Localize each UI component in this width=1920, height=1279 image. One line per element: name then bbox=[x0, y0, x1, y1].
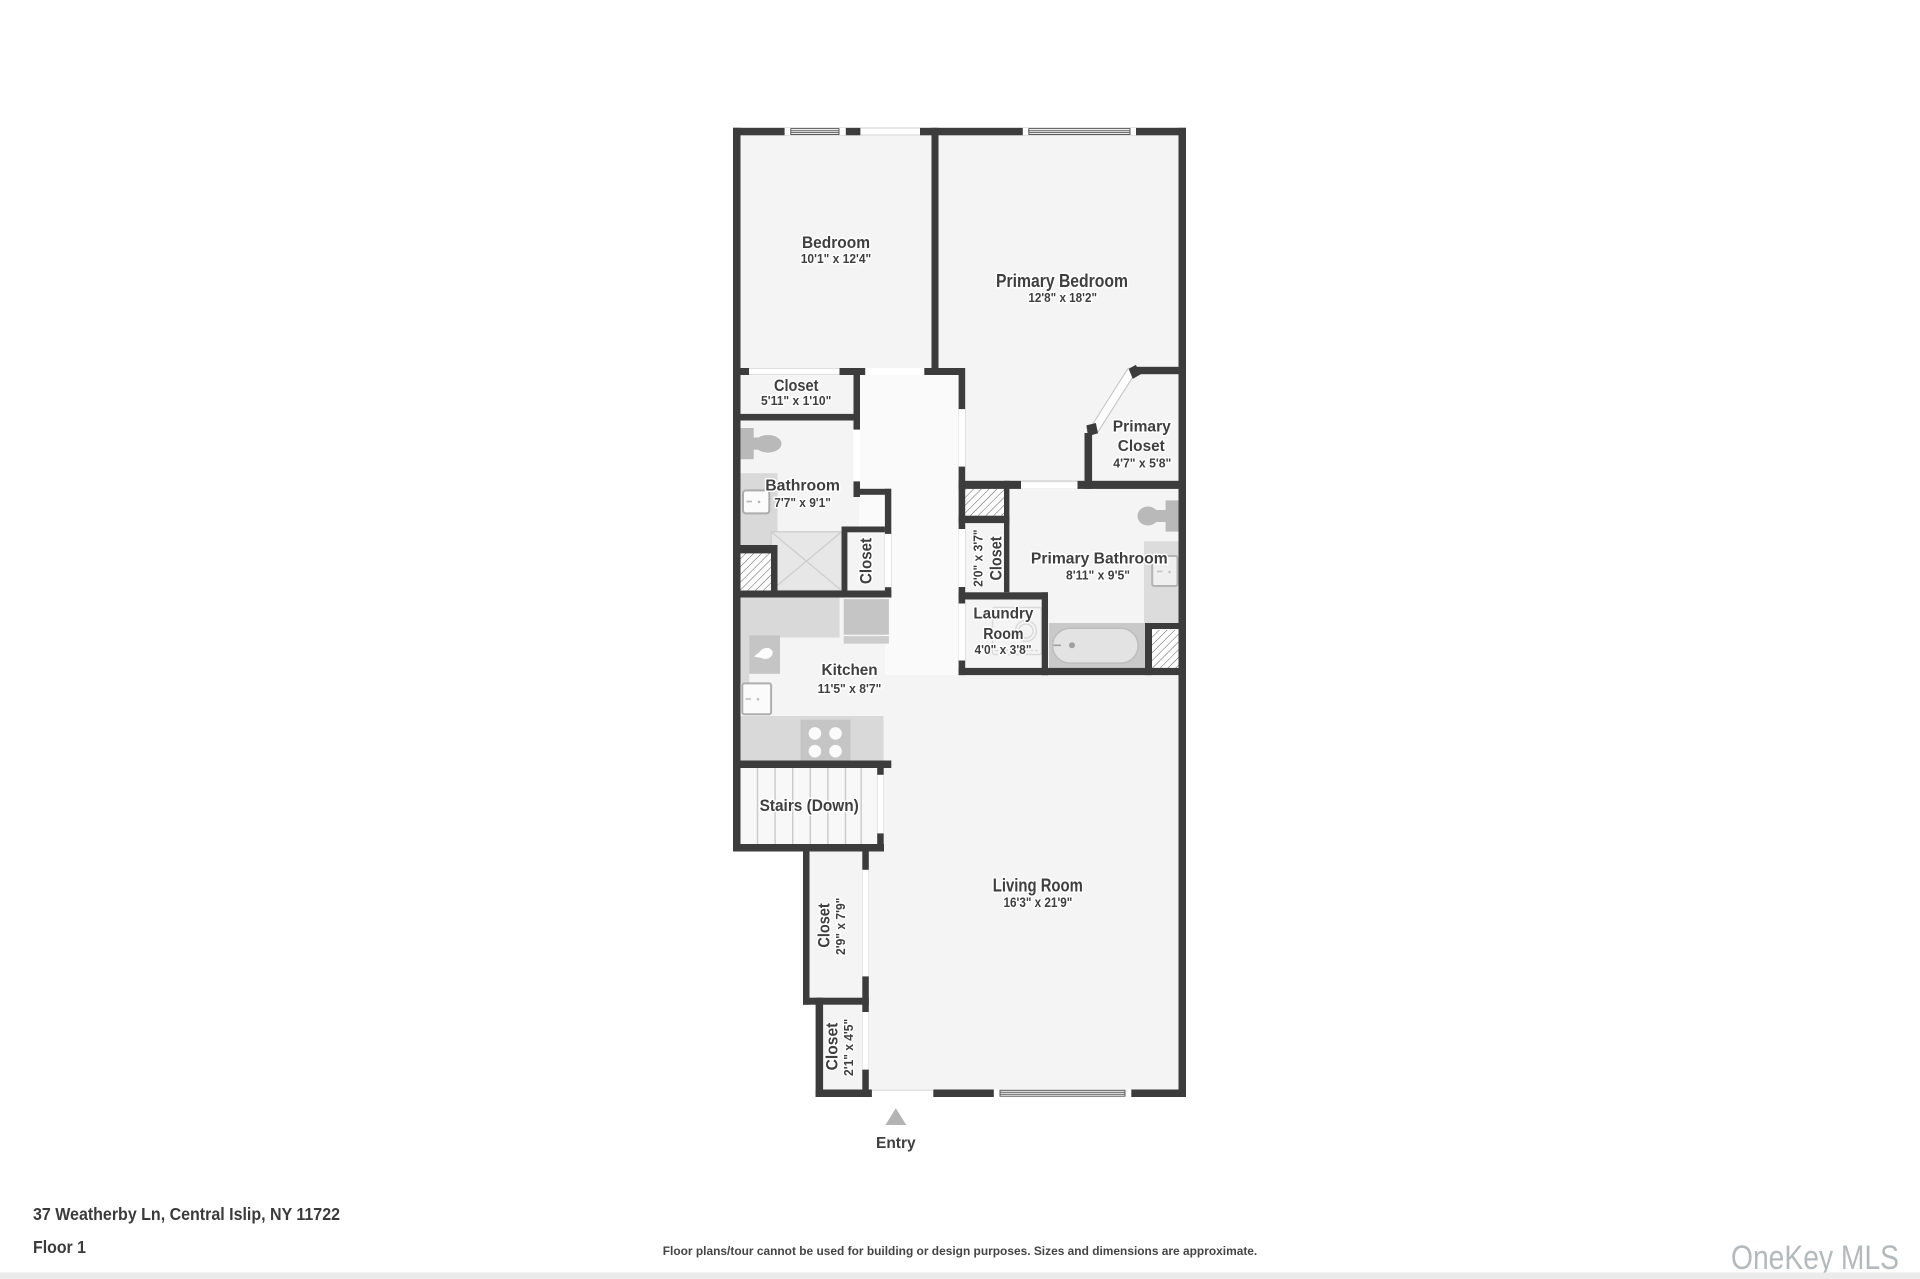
svg-text:Floor 1: Floor 1 bbox=[33, 1237, 86, 1257]
svg-text:16'3" x 21'9": 16'3" x 21'9" bbox=[1004, 895, 1073, 910]
svg-text:Closet: Closet bbox=[857, 537, 875, 584]
svg-text:Closet: Closet bbox=[987, 536, 1005, 581]
svg-text:4'0" x 3'8": 4'0" x 3'8" bbox=[974, 642, 1031, 657]
svg-text:Entry: Entry bbox=[876, 1135, 916, 1152]
svg-text:2'9" x 7'9": 2'9" x 7'9" bbox=[833, 898, 848, 955]
svg-text:Primary Bedroom: Primary Bedroom bbox=[996, 271, 1128, 291]
svg-text:11'5" x 8'7": 11'5" x 8'7" bbox=[818, 681, 882, 696]
svg-text:4'7" x 5'8": 4'7" x 5'8" bbox=[1113, 457, 1171, 471]
svg-text:Room: Room bbox=[983, 626, 1023, 643]
svg-text:12'8" x 18'2": 12'8" x 18'2" bbox=[1028, 290, 1097, 305]
svg-text:Floor plans/tour cannot be use: Floor plans/tour cannot be used for buil… bbox=[663, 1244, 1258, 1258]
svg-text:Kitchen: Kitchen bbox=[822, 662, 878, 679]
svg-text:8'11" x 9'5": 8'11" x 9'5" bbox=[1066, 568, 1130, 583]
svg-text:OneKey MLS: OneKey MLS bbox=[1731, 1239, 1899, 1277]
svg-text:Laundry: Laundry bbox=[973, 606, 1033, 623]
svg-text:Bathroom: Bathroom bbox=[765, 477, 840, 494]
svg-text:7'7" x 9'1": 7'7" x 9'1" bbox=[774, 496, 831, 510]
svg-text:Closet: Closet bbox=[816, 903, 834, 948]
svg-text:10'1" x 12'4": 10'1" x 12'4" bbox=[801, 251, 872, 266]
svg-text:2'0" x 3'7": 2'0" x 3'7" bbox=[971, 529, 986, 587]
svg-text:Stairs (Down): Stairs (Down) bbox=[760, 796, 859, 815]
svg-text:2'1" x 4'5": 2'1" x 4'5" bbox=[841, 1019, 856, 1076]
svg-text:Living Room: Living Room bbox=[993, 876, 1083, 896]
svg-text:Bedroom: Bedroom bbox=[802, 234, 870, 252]
svg-text:5'11" x 1'10": 5'11" x 1'10" bbox=[761, 393, 831, 408]
svg-text:Closet: Closet bbox=[823, 1022, 841, 1070]
svg-text:Closet: Closet bbox=[1118, 437, 1166, 455]
svg-text:37 Weatherby Ln, Central Islip: 37 Weatherby Ln, Central Islip, NY 11722 bbox=[33, 1204, 340, 1224]
svg-text:Primary Bathroom: Primary Bathroom bbox=[1031, 551, 1168, 568]
svg-text:Primary: Primary bbox=[1113, 417, 1171, 435]
